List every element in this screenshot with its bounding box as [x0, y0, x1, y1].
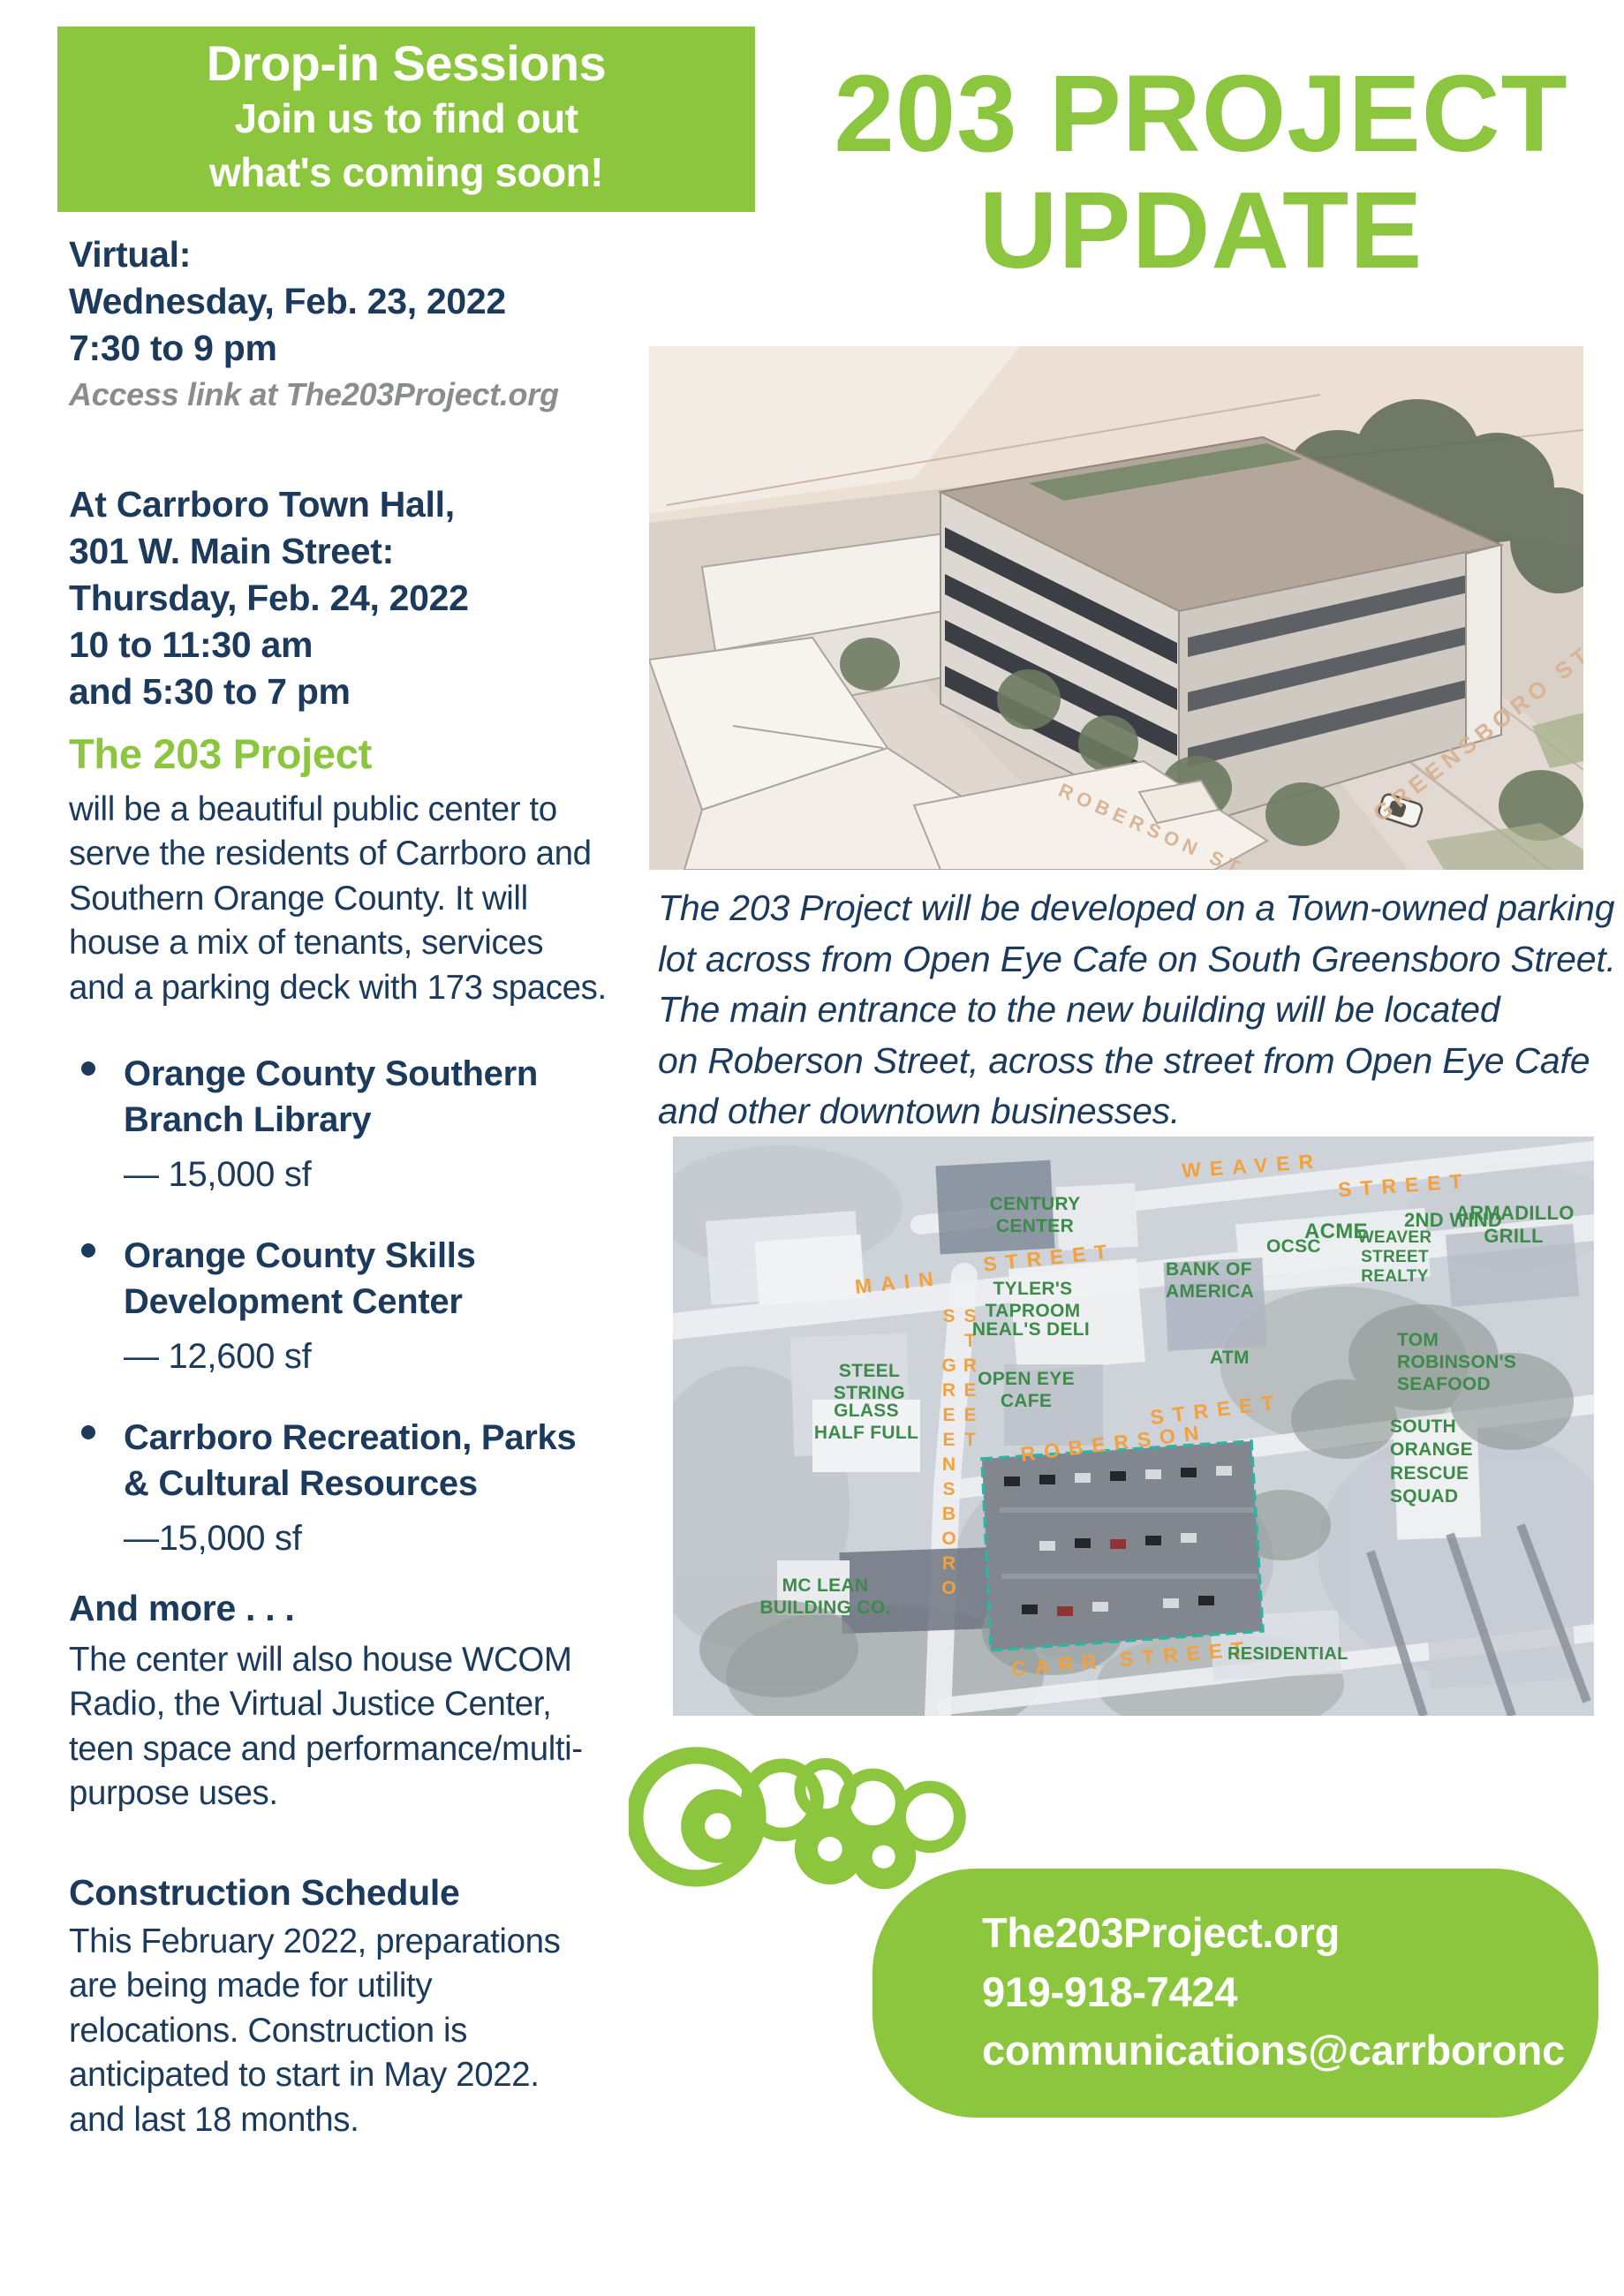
tenant-name: Orange County Skills Development Center	[124, 1233, 678, 1325]
banner-subtitle-1: Join us to find out	[57, 92, 755, 146]
construction-schedule-body: This February 2022, preparations are bei…	[69, 1920, 678, 2142]
map-weaver-street-realty-label: WEAVER STREET REALTY	[1353, 1228, 1437, 1287]
map-mclean-building-label: MC LEAN BUILDING CO.	[757, 1575, 894, 1619]
architectural-rendering-image: GREENSBORO ST. ROBERSON ST	[649, 346, 1583, 870]
bullet-icon	[81, 1243, 95, 1258]
map-bank-of-america-label: BANK OF AMERICA	[1166, 1258, 1254, 1303]
contact-info: The203Project.org 919-918-7424 communica…	[982, 1904, 1565, 2081]
map-tylers-taproom-label: TYLER'S TAPROOM	[982, 1278, 1084, 1322]
contact-box: The203Project.org 919-918-7424 communica…	[872, 1869, 1598, 2118]
virtual-heading: Virtual:	[69, 231, 652, 278]
list-item: Orange County Skills Development Center …	[69, 1233, 678, 1379]
list-item: Carrboro Recreation, Parks & Cultural Re…	[69, 1415, 678, 1561]
virtual-time: 7:30 to 9 pm	[69, 325, 652, 372]
tenant-name: Carrboro Recreation, Parks & Cultural Re…	[124, 1415, 678, 1507]
tenant-list: Orange County Southern Branch Library — …	[69, 1051, 678, 1597]
virtual-session-block: Virtual: Wednesday, Feb. 23, 2022 7:30 t…	[69, 231, 652, 372]
flyer-page: Drop-in Sessions Join us to find out wha…	[0, 0, 1624, 2296]
map-s-greensboro-street-label: S GREENSBORO STREET	[938, 1306, 980, 1708]
and-more-heading: And more . . .	[69, 1588, 295, 1629]
contact-website: The203Project.org	[982, 1904, 1565, 1963]
town-hall-session-block: At Carrboro Town Hall, 301 W. Main Stree…	[69, 481, 669, 715]
construction-schedule-heading: Construction Schedule	[69, 1872, 459, 1914]
map-neals-deli-label: NEAL'S DELI	[971, 1318, 1091, 1341]
page-title: 203 PROJECT UPDATE	[777, 57, 1624, 290]
bullet-icon	[81, 1425, 95, 1439]
map-steel-string-label: STEEL STRING	[823, 1360, 916, 1404]
list-item: Orange County Southern Branch Library — …	[69, 1051, 678, 1197]
map-open-eye-cafe-label: OPEN EYE CAFE	[978, 1368, 1075, 1412]
map-atm-label: ATM	[1210, 1347, 1250, 1369]
tenant-size: — 12,600 sf	[124, 1333, 678, 1379]
tenant-name: Orange County Southern Branch Library	[124, 1051, 678, 1143]
tenant-size: —15,000 sf	[124, 1515, 678, 1561]
project-description: will be a beautiful public center to ser…	[69, 788, 678, 1010]
map-rescue-squad-label: SOUTH ORANGE RESCUE SQUAD	[1390, 1416, 1473, 1508]
map-armadillo-grill-label: ARMADILLO GRILL	[1455, 1202, 1572, 1249]
tenant-size: — 15,000 sf	[124, 1152, 678, 1197]
page-title-line2: UPDATE	[777, 173, 1624, 290]
bullet-icon	[81, 1061, 95, 1076]
contact-phone: 919-918-7424	[982, 1963, 1565, 2022]
and-more-body: The center will also house WCOM Radio, t…	[69, 1638, 678, 1816]
page-title-line1: 203 PROJECT	[777, 57, 1624, 173]
contact-email: communications@carrboronc	[982, 2021, 1565, 2081]
map-century-center-label: CENTURY CENTER	[982, 1193, 1088, 1237]
banner-title: Drop-in Sessions	[57, 35, 755, 92]
drop-in-sessions-banner: Drop-in Sessions Join us to find out wha…	[57, 26, 755, 212]
map-tom-robinsons-seafood-label: TOM ROBINSON'S SEAFOOD	[1397, 1329, 1516, 1396]
aerial-map-image: WEAVER STREET MAIN STREET S GREENSBORO S…	[673, 1137, 1594, 1716]
project-heading: The 203 Project	[69, 729, 652, 778]
rendering-caption: The 203 Project will be developed on a T…	[658, 883, 1620, 1137]
map-residential-label: RESIDENTIAL	[1227, 1643, 1348, 1665]
virtual-access-note: Access link at The203Project.org	[69, 376, 652, 413]
banner-subtitle-2: what's coming soon!	[57, 146, 755, 200]
rendering-illustration	[649, 346, 1583, 870]
map-glass-half-full-label: GLASS HALF FULL	[805, 1400, 927, 1444]
virtual-date: Wednesday, Feb. 23, 2022	[69, 278, 652, 325]
